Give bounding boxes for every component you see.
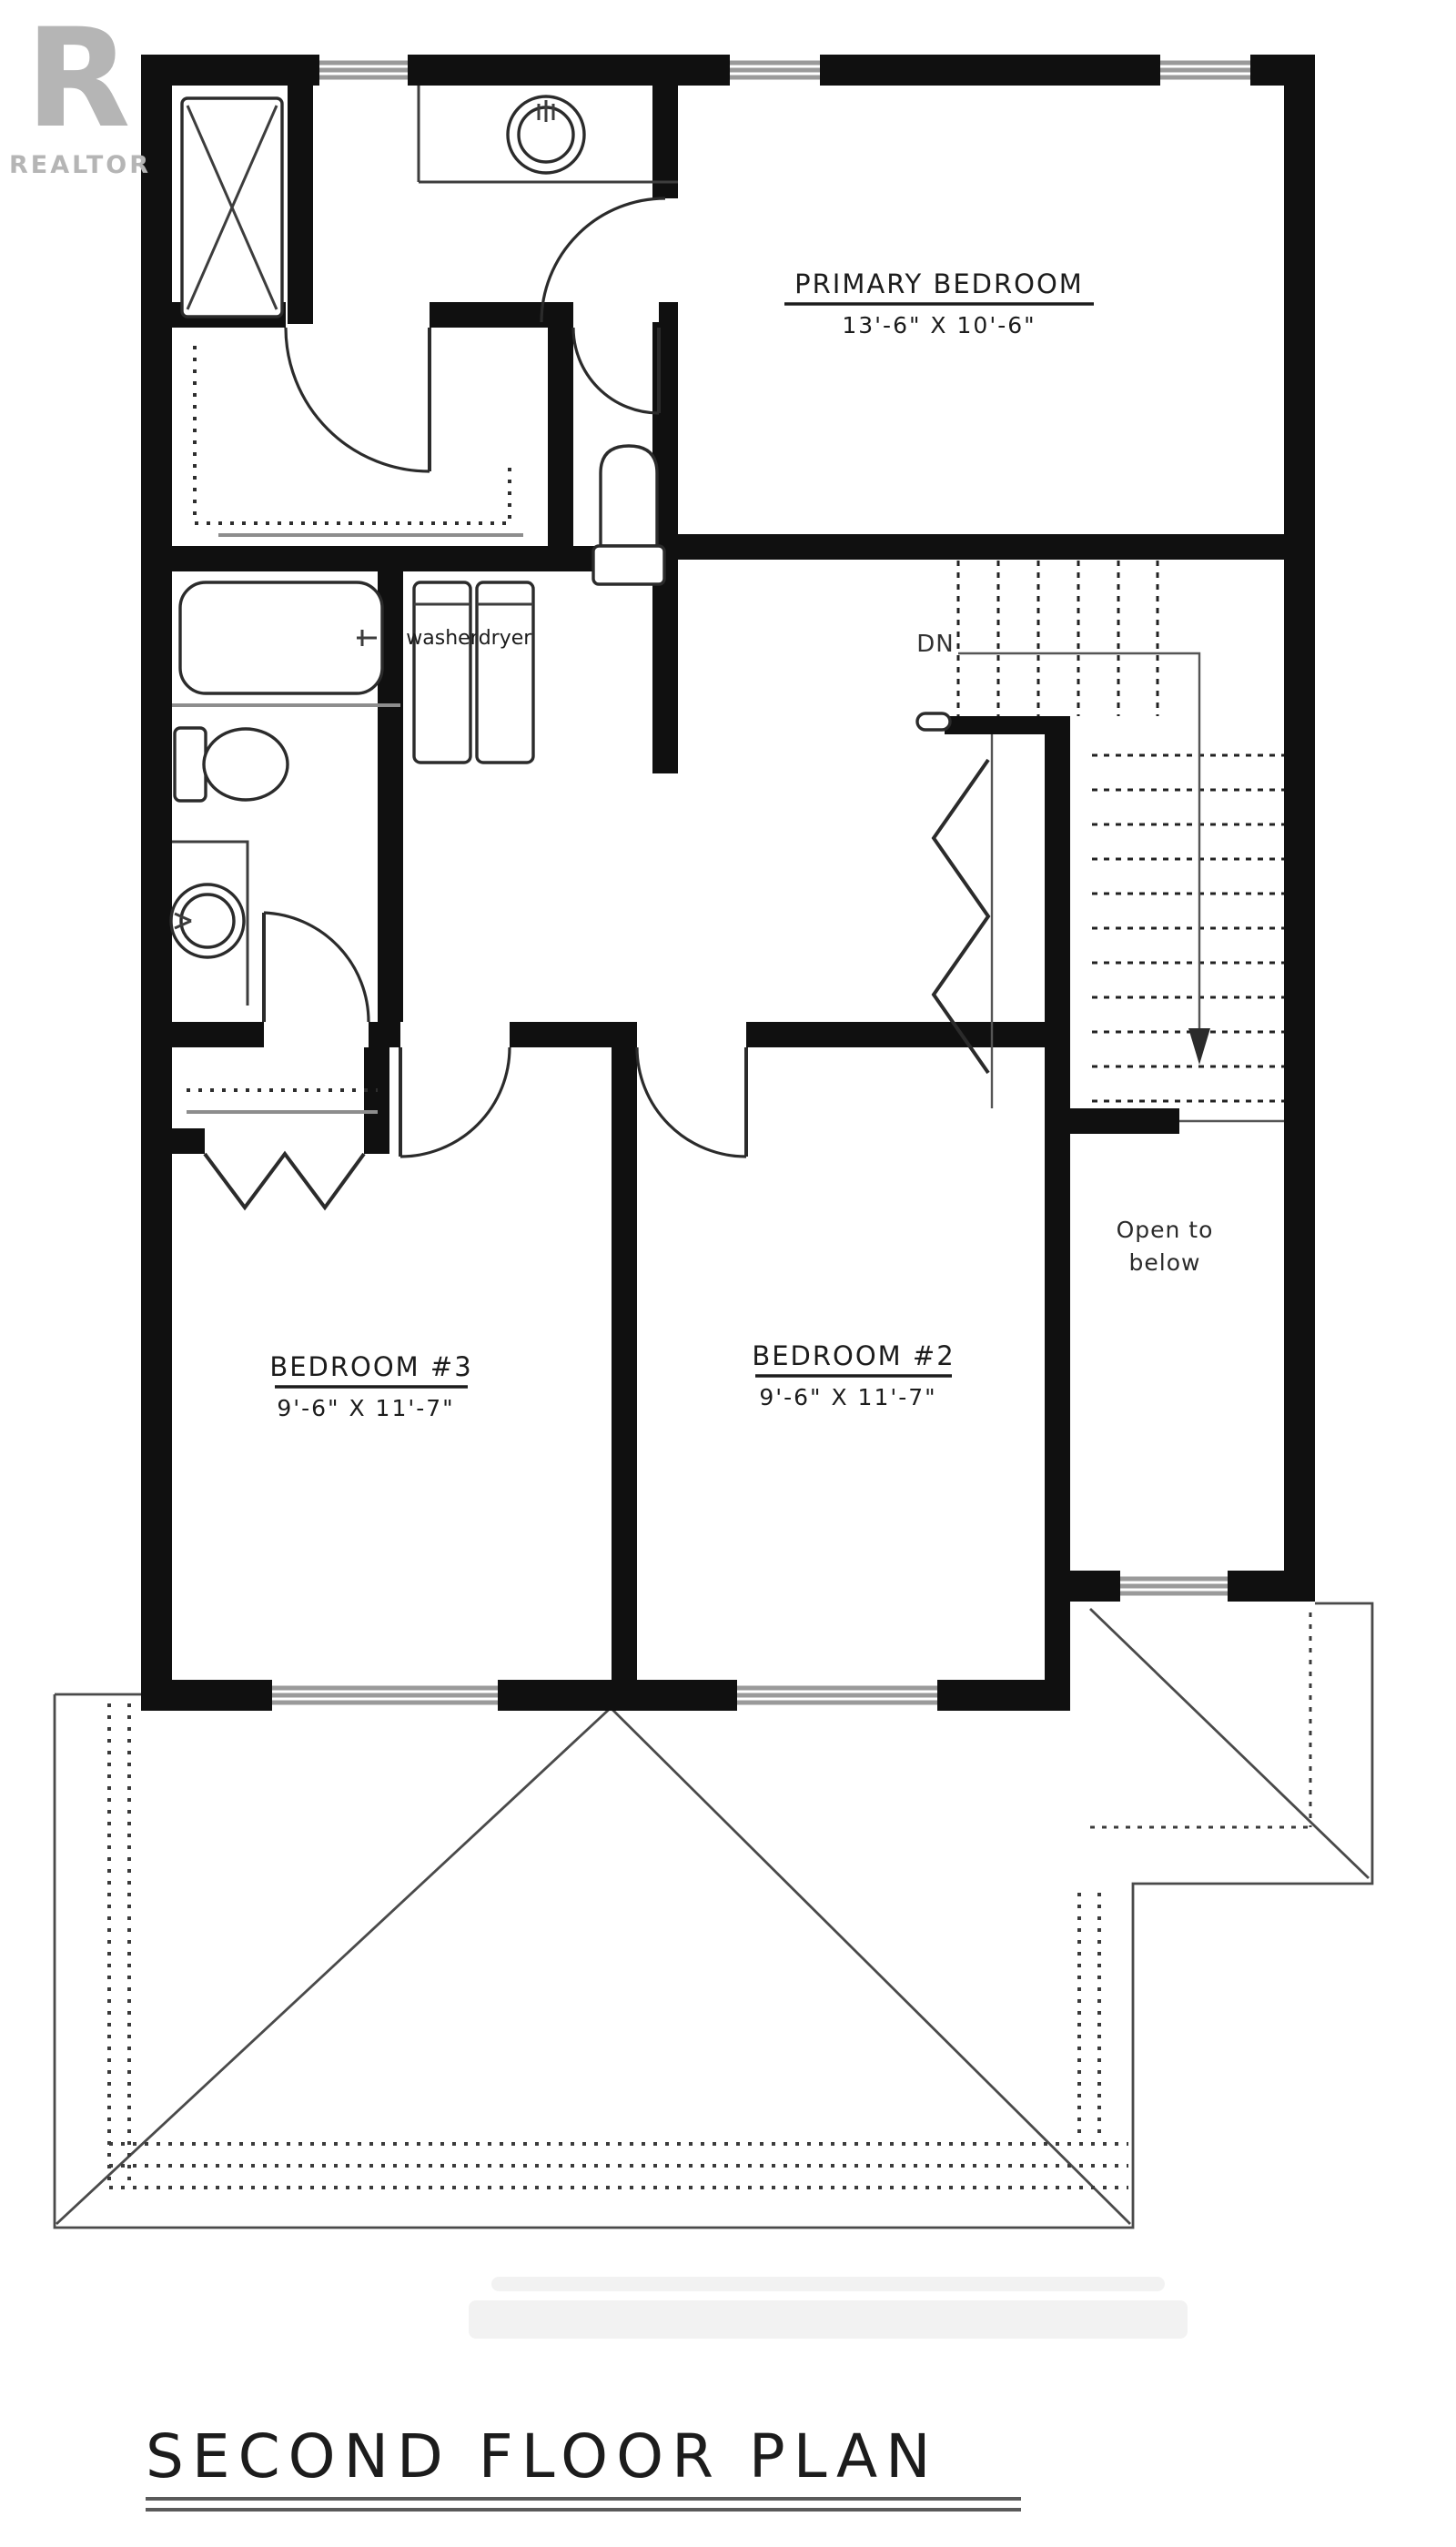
stair-treads-lower: [1092, 755, 1284, 1101]
door-arc-wc: [573, 328, 659, 413]
stair-treads-upper: [958, 561, 1158, 716]
dryer-label: dryer: [479, 627, 533, 650]
bedroom2-dims: 9'-6" X 11'-7": [759, 1384, 936, 1410]
wall-hall-south: [746, 1022, 1045, 1047]
door-arc-bedroom2: [637, 1047, 746, 1157]
open-below-label: below: [1129, 1249, 1201, 1276]
stair-direction-line: [958, 653, 1199, 1046]
wall-hall-south: [510, 1022, 637, 1047]
main-bath: [171, 582, 400, 1022]
outer-walls: [141, 55, 1315, 1711]
wall-bedroom-divider: [612, 1047, 637, 1711]
toilet-icon: [601, 446, 657, 546]
stairs: DN: [916, 561, 1284, 1101]
wall-left: [141, 55, 172, 1711]
realtor-logo: R REALTOR: [9, 0, 151, 179]
bedroom-doors: [187, 1047, 746, 1208]
open-below-label: Open to: [1117, 1217, 1214, 1243]
window: [1120, 1571, 1228, 1602]
wall-hall-south: [172, 1022, 264, 1047]
toilet-icon: [204, 729, 288, 800]
stair-bullnose: [917, 713, 950, 730]
watermark-line: [469, 2300, 1188, 2339]
bifold-doors-bed3: [205, 1154, 364, 1208]
floor-plan-page: washer dryer DN: [0, 0, 1456, 2547]
bedroom2-label: BEDROOM #2: [752, 1340, 955, 1371]
closet-shelf-dotted: [195, 346, 510, 523]
down-arrow-icon: [1188, 1028, 1210, 1065]
floor-plan-drawing: washer dryer DN: [0, 0, 1456, 2547]
primary-bedroom-dims: 13'-6" X 10'-6": [842, 312, 1036, 339]
dryer-box: [477, 582, 533, 763]
wall-ensuite-south: [430, 302, 573, 328]
interior-walls: [172, 86, 1284, 1711]
window: [272, 1680, 498, 1711]
page-title: SECOND FLOOR PLAN: [146, 2421, 939, 2491]
window: [1160, 55, 1250, 86]
watermark: [469, 2277, 1188, 2339]
wall-bed3-closet: [364, 1128, 389, 1154]
bedroom3-dims: 9'-6" X 11'-7": [277, 1395, 454, 1421]
room-labels: PRIMARY BEDROOM 13'-6" X 10'-6" BEDROOM …: [269, 268, 1213, 1421]
title-block: SECOND FLOOR PLAN: [146, 2421, 1021, 2510]
washer-box: [414, 582, 470, 763]
wall-openbelow-north: [1045, 1108, 1179, 1134]
primary-bedroom-label: PRIMARY BEDROOM: [794, 268, 1084, 299]
window: [737, 1680, 937, 1711]
wall-bed3-closet: [172, 1128, 205, 1154]
window: [730, 55, 820, 86]
wall-top: [141, 55, 1315, 86]
laundry: washer dryer: [406, 582, 533, 763]
roof-hip-bump: [1090, 1609, 1369, 1878]
window: [319, 55, 408, 86]
linen-closet: [934, 734, 992, 1108]
bedroom3-label: BEDROOM #3: [269, 1351, 472, 1382]
wall-east-core: [1045, 716, 1070, 1711]
wall-hall-south: [369, 1022, 400, 1047]
toilet-tank: [175, 728, 206, 801]
walkin-closet: [195, 328, 523, 535]
wall-shower-divider: [288, 86, 313, 324]
door-arc-closet: [286, 328, 430, 471]
wall-right: [1284, 55, 1315, 1602]
windows: [272, 55, 1250, 1711]
door-arc-bedroom3: [400, 1047, 510, 1157]
bathtub-icon: [180, 582, 382, 693]
logo-word: REALTOR: [9, 151, 151, 179]
door-arc-bath: [264, 913, 369, 1022]
wall-wc-divider: [548, 328, 573, 571]
watermark-line: [491, 2277, 1165, 2291]
logo-r-letter: R: [25, 0, 131, 158]
wall-primary-south: [678, 534, 1284, 560]
washer-label: washer: [406, 627, 479, 650]
stair-dn-label: DN: [916, 631, 954, 658]
toilet-tank: [593, 546, 664, 584]
